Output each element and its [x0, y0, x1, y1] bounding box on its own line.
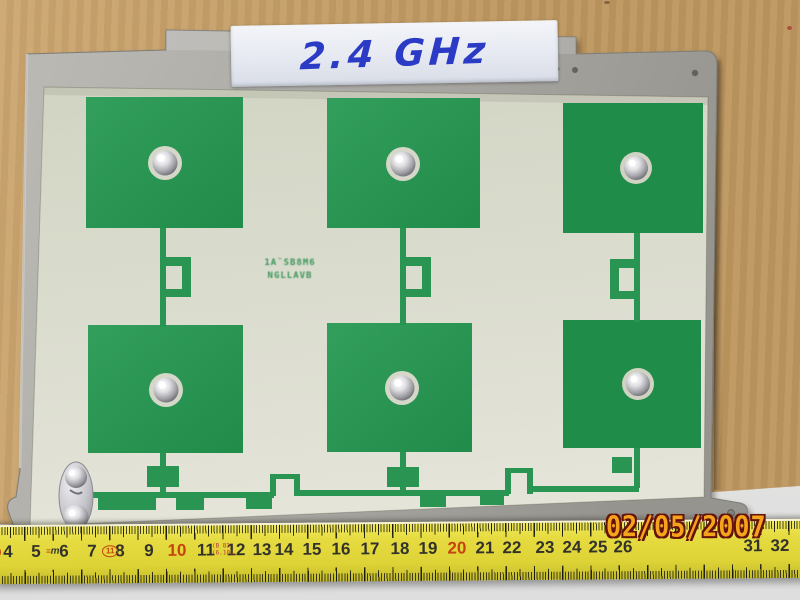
ruler-number-32: 32 [770, 536, 789, 556]
ruler-number-5: 5 [31, 542, 41, 562]
pcb-silkscreen-marking: 1A˜SB8M6 NGLLAVB [242, 257, 338, 283]
ruler-number-7: 7 [87, 541, 97, 561]
ruler-number-25: 25 [588, 537, 607, 557]
ruler-class-mark-left: II [0, 546, 1, 558]
ruler-number-19: 19 [418, 539, 437, 559]
tape-label: 2.4 GHz [230, 20, 558, 87]
ruler-number-24: 24 [562, 538, 581, 558]
photo-antenna-array: 1A˜SB8M6 NGLLAVB 2.4 GHz 456789101112131… [0, 0, 800, 600]
ruler-number-10: 10 [167, 541, 186, 561]
ruler-number-4: 4 [3, 542, 13, 562]
ruler-certification-stamp: (B 83(6.101 [212, 542, 234, 556]
ruler-number-20: 20 [447, 538, 466, 558]
stamp-line2: (6.101 [212, 549, 234, 556]
ruler-number-17: 17 [360, 539, 379, 559]
feedpoint-solder [59, 462, 93, 530]
silkscreen-line2: NGLLAVB [242, 270, 338, 283]
ruler-number-15: 15 [302, 540, 321, 560]
ruler-number-9: 9 [144, 541, 154, 561]
screw [620, 152, 652, 184]
ruler-number-23: 23 [535, 538, 554, 558]
screw [622, 368, 654, 400]
ruler-number-14: 14 [274, 540, 293, 560]
screw [385, 371, 419, 405]
screw [149, 373, 183, 407]
ruler-number-18: 18 [390, 539, 409, 559]
ruler-number-21: 21 [475, 538, 494, 558]
screw [386, 147, 420, 181]
camera-date-stamp: 02/05/2007 [606, 510, 767, 543]
tape-label-text: 2.4 GHz [299, 29, 491, 79]
silkscreen-line1: 1A˜SB8M6 [242, 257, 338, 270]
ruler-number-16: 16 [331, 539, 350, 559]
screw [148, 146, 182, 180]
ruler-logo-text: m [51, 546, 60, 557]
ruler-maker-logo: ≡m [46, 546, 60, 557]
ruler-number-13: 13 [252, 540, 271, 560]
ruler-number-6: 6 [59, 542, 69, 562]
ruler-number-22: 22 [502, 538, 521, 558]
